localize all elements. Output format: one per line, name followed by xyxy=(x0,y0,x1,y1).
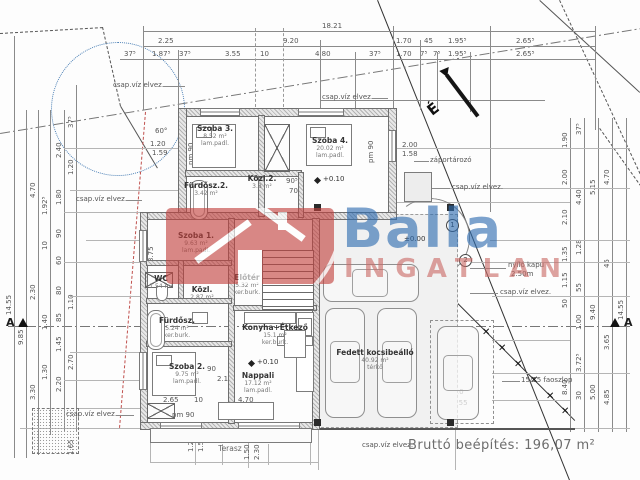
dimension-line xyxy=(50,110,51,435)
dim: 4.70 xyxy=(604,169,612,185)
room-label: Szoba 3. 8.52 m² lam.padl. xyxy=(185,124,245,147)
dim: 45 xyxy=(424,38,433,46)
partition-wall xyxy=(146,260,232,266)
fence-post-icon: ✕ xyxy=(482,328,490,338)
leader-line xyxy=(430,188,450,189)
dimension-line xyxy=(584,118,585,432)
dim: 1.20 xyxy=(150,141,166,149)
extension-line xyxy=(70,296,140,297)
extension-line xyxy=(64,262,140,263)
car-cabin xyxy=(352,269,388,297)
extension-line xyxy=(64,212,140,213)
dim: 80 xyxy=(56,286,64,295)
post-note: 15/15 faoszlop xyxy=(521,377,572,385)
section-marker-icon xyxy=(610,318,620,327)
dim: 70 xyxy=(289,188,298,196)
extension-line xyxy=(78,408,140,409)
reservoir-note: záportározó xyxy=(430,157,472,165)
level-value: +0.10 xyxy=(257,358,278,366)
section-marker-label: A xyxy=(624,316,633,329)
sofa xyxy=(218,402,274,420)
drain-note: csap.víz elvez. xyxy=(362,442,413,450)
window xyxy=(139,352,147,390)
leader-line xyxy=(470,293,498,294)
room-label: Közl. 2.87 m² xyxy=(182,285,222,301)
leader-line xyxy=(414,161,429,162)
survey-point-1: 1 xyxy=(446,219,459,232)
dimension-line xyxy=(26,110,27,458)
gross-built-area-text: Bruttó beépítés: 196,07 m² xyxy=(408,438,595,453)
extension-line xyxy=(420,40,421,110)
dim: 2.00 xyxy=(562,169,570,185)
dim: 90 xyxy=(56,229,64,238)
dim: 37⁵ xyxy=(124,51,136,59)
fence-post-icon: ✕ xyxy=(546,392,554,402)
dim: 1.35 xyxy=(562,246,570,262)
extension-line xyxy=(86,240,140,241)
dim: 1.20 xyxy=(68,159,76,175)
sill-height-note: pm 90 xyxy=(172,412,194,420)
dimension-line xyxy=(143,46,595,47)
extension-line xyxy=(393,148,630,149)
dim: 3.30 xyxy=(30,384,38,400)
leader-line xyxy=(372,98,388,99)
dim: 2.40 xyxy=(56,142,64,158)
dimension-line xyxy=(626,118,627,432)
storm-reservoir xyxy=(404,172,432,202)
room-label: Szoba 4. 20.02 m² lam.padl. xyxy=(300,136,360,159)
extension-line xyxy=(64,380,140,381)
dim: 1.95⁵ xyxy=(448,38,466,46)
dim: 4.85 xyxy=(604,389,612,405)
dim: 2.10 xyxy=(562,209,570,225)
dim: 1.59 xyxy=(152,150,168,158)
level-value: +0.10 xyxy=(323,175,344,183)
site-edge-line xyxy=(318,428,575,430)
drain-note: csap.víz elvez. xyxy=(452,184,503,192)
dim: 2.70 xyxy=(68,354,76,370)
dim: 10 xyxy=(194,397,203,405)
dim: 45 xyxy=(604,259,612,268)
dim: 1.80 xyxy=(56,189,64,205)
dim: 14.55 xyxy=(6,295,14,315)
drain-note: csap.víz elvez. xyxy=(66,411,117,419)
chimney-shaft xyxy=(264,124,290,172)
extension-line xyxy=(393,26,394,108)
dim: 2.20 xyxy=(56,376,64,392)
dim: 2.30 xyxy=(254,444,262,460)
window xyxy=(388,130,396,162)
extension-line xyxy=(150,442,151,462)
window xyxy=(200,108,240,116)
dim: 1.95⁵ xyxy=(448,51,466,59)
dim: 55 xyxy=(576,283,584,292)
room-label: Szoba 2. 9.75 m² lam.padl. xyxy=(162,362,212,385)
drain-route-a xyxy=(0,27,103,34)
dim: 3.72⁵ xyxy=(576,354,584,372)
dim: 1.90 xyxy=(562,132,570,148)
level-marker-icon xyxy=(314,177,321,184)
room-label: Közl.2. 3.8 m² xyxy=(240,174,284,190)
dim: 50 xyxy=(562,299,570,308)
axis-line xyxy=(255,28,256,112)
dim: 5.00 xyxy=(590,384,598,400)
dim: 3.65 xyxy=(604,334,612,350)
drain-note: csap.víz elvez. xyxy=(76,196,127,204)
dim: 4.70 xyxy=(30,182,38,198)
dimension-line xyxy=(143,31,595,32)
leader-line xyxy=(116,415,134,416)
section-marker-icon xyxy=(18,318,28,327)
carport-post xyxy=(447,204,454,211)
dim: 37⁵ xyxy=(68,116,76,128)
dim: 10 xyxy=(42,241,50,250)
dim: 1.15 xyxy=(562,272,570,288)
dimension-line xyxy=(598,118,599,432)
dim: 9.20 xyxy=(283,38,299,46)
dim: 1.92⁵ xyxy=(42,197,50,215)
room-label: Terasz xyxy=(210,444,250,453)
extension-line xyxy=(318,428,319,470)
wall xyxy=(388,108,397,220)
wall xyxy=(140,212,397,220)
room-label: Konyha+Étkező 15.1 m² ker.burk. xyxy=(235,323,315,346)
leader-line xyxy=(163,86,185,87)
extension-line xyxy=(70,190,178,191)
fence-post-icon: ✕ xyxy=(498,344,506,354)
extension-line xyxy=(320,40,321,110)
dim: 2.30 xyxy=(30,284,38,300)
dim: 2.65⁵ xyxy=(516,38,534,46)
extension-line xyxy=(437,52,438,112)
dimension-line xyxy=(38,110,39,455)
room-label: WC 1.54 m² xyxy=(147,274,175,290)
car-cabin xyxy=(443,355,473,391)
dimension-line xyxy=(64,110,65,432)
dim: 1.30 xyxy=(42,364,50,380)
dim: 90⁵ xyxy=(286,178,298,186)
dim: 37⁵ xyxy=(179,51,191,59)
dim: 1.45 xyxy=(56,336,64,352)
extension-line xyxy=(492,340,570,341)
sill-height-note: pm 90 xyxy=(368,141,376,163)
leader-line xyxy=(126,200,142,201)
dim: 4.80 xyxy=(315,51,331,59)
section-marker-label: A xyxy=(6,316,15,329)
carport-post xyxy=(314,204,321,211)
level-marker-icon xyxy=(248,360,255,367)
angle-note: 60° xyxy=(155,128,167,136)
fence-post-icon: ✕ xyxy=(561,407,569,417)
gate-note-size: 2.50m xyxy=(511,271,533,279)
dim: 1.58 xyxy=(402,151,418,159)
shaft xyxy=(147,403,175,419)
dim: 4.40 xyxy=(576,189,584,205)
carport-post xyxy=(447,419,454,426)
dim: 1.00 xyxy=(576,314,584,330)
dimension-line xyxy=(150,462,318,463)
floor-plan-canvas: ✕ ✕ ✕ ✕ ✕ ✕ É 18.21 2.25 9.20 1.70 45 1.… xyxy=(0,0,640,480)
dim: 30 xyxy=(576,391,584,400)
car-top-view xyxy=(437,326,479,420)
dim: 60 xyxy=(56,256,64,265)
extension-line xyxy=(575,428,630,429)
survey-point-2: 2 xyxy=(459,254,472,267)
room-label: Nappali 17.12 m² lam.padl. xyxy=(232,371,284,394)
level-value: ±0.00 xyxy=(404,235,425,243)
window xyxy=(298,108,344,116)
room-label: Előtér 5.32 m² ker.burk. xyxy=(222,273,272,296)
room-label: Fedett kocsibeálló 40.92 m² térkő xyxy=(330,348,420,371)
terrace xyxy=(150,428,312,443)
extension-line xyxy=(178,50,179,108)
car-top-view xyxy=(323,264,419,302)
extension-line xyxy=(70,352,140,353)
north-label: É xyxy=(424,99,443,119)
extension-line xyxy=(472,262,630,263)
dimension-line xyxy=(120,59,595,60)
axis-line xyxy=(283,28,284,112)
extension-line xyxy=(492,373,630,374)
extension-line xyxy=(490,240,630,241)
dim: 37⁵ xyxy=(369,51,381,59)
extension-line xyxy=(595,26,596,130)
extension-line xyxy=(143,26,144,110)
dim: 9.85 xyxy=(18,329,26,345)
leader-line xyxy=(502,381,520,382)
north-arrow-icon xyxy=(445,74,479,118)
dim: 1.70 xyxy=(396,38,412,46)
carport-post xyxy=(314,419,321,426)
dim-total: 18.21 xyxy=(322,23,342,31)
dim: 1.70 xyxy=(396,51,412,59)
dim: 37⁵ xyxy=(576,123,584,135)
drain-note: csap.víz elvez. xyxy=(322,94,373,102)
dim: 1.28 xyxy=(576,239,584,255)
dimension-line xyxy=(612,118,613,432)
dimension-line xyxy=(14,36,15,458)
leader-line xyxy=(470,268,506,269)
extension-line xyxy=(492,400,570,401)
partition-wall xyxy=(298,172,304,218)
dim: 1.40 xyxy=(42,314,50,330)
window xyxy=(139,230,147,262)
dim: 10 xyxy=(260,51,269,59)
gate-note: nyíló kapu xyxy=(508,262,544,270)
fence-post-icon: ✕ xyxy=(530,376,538,386)
dim: 1.87⁵ xyxy=(152,51,170,59)
room-label: Szoba 1. 9.63 m² lam.padl. xyxy=(170,231,222,254)
drain-note: csap.víz elvez. xyxy=(500,289,551,297)
dim: 3.55 xyxy=(225,51,241,59)
dim: 2.65⁵ xyxy=(516,51,534,59)
room-label: Fürdősz. 5.24 m² ker.burk. xyxy=(155,316,199,339)
dimension-line xyxy=(570,118,571,432)
dim: 2.25 xyxy=(158,38,174,46)
drain-note: csap.víz elvez. xyxy=(113,82,164,90)
dim: 7⁵ xyxy=(420,51,427,59)
dim: 85 xyxy=(56,313,64,322)
room-label: Fürdősz.2. 3.42 m² xyxy=(183,181,229,197)
dim: 2.00 xyxy=(402,142,418,150)
dim: 9.40 xyxy=(590,304,598,320)
fence-post-icon: ✕ xyxy=(514,360,522,370)
